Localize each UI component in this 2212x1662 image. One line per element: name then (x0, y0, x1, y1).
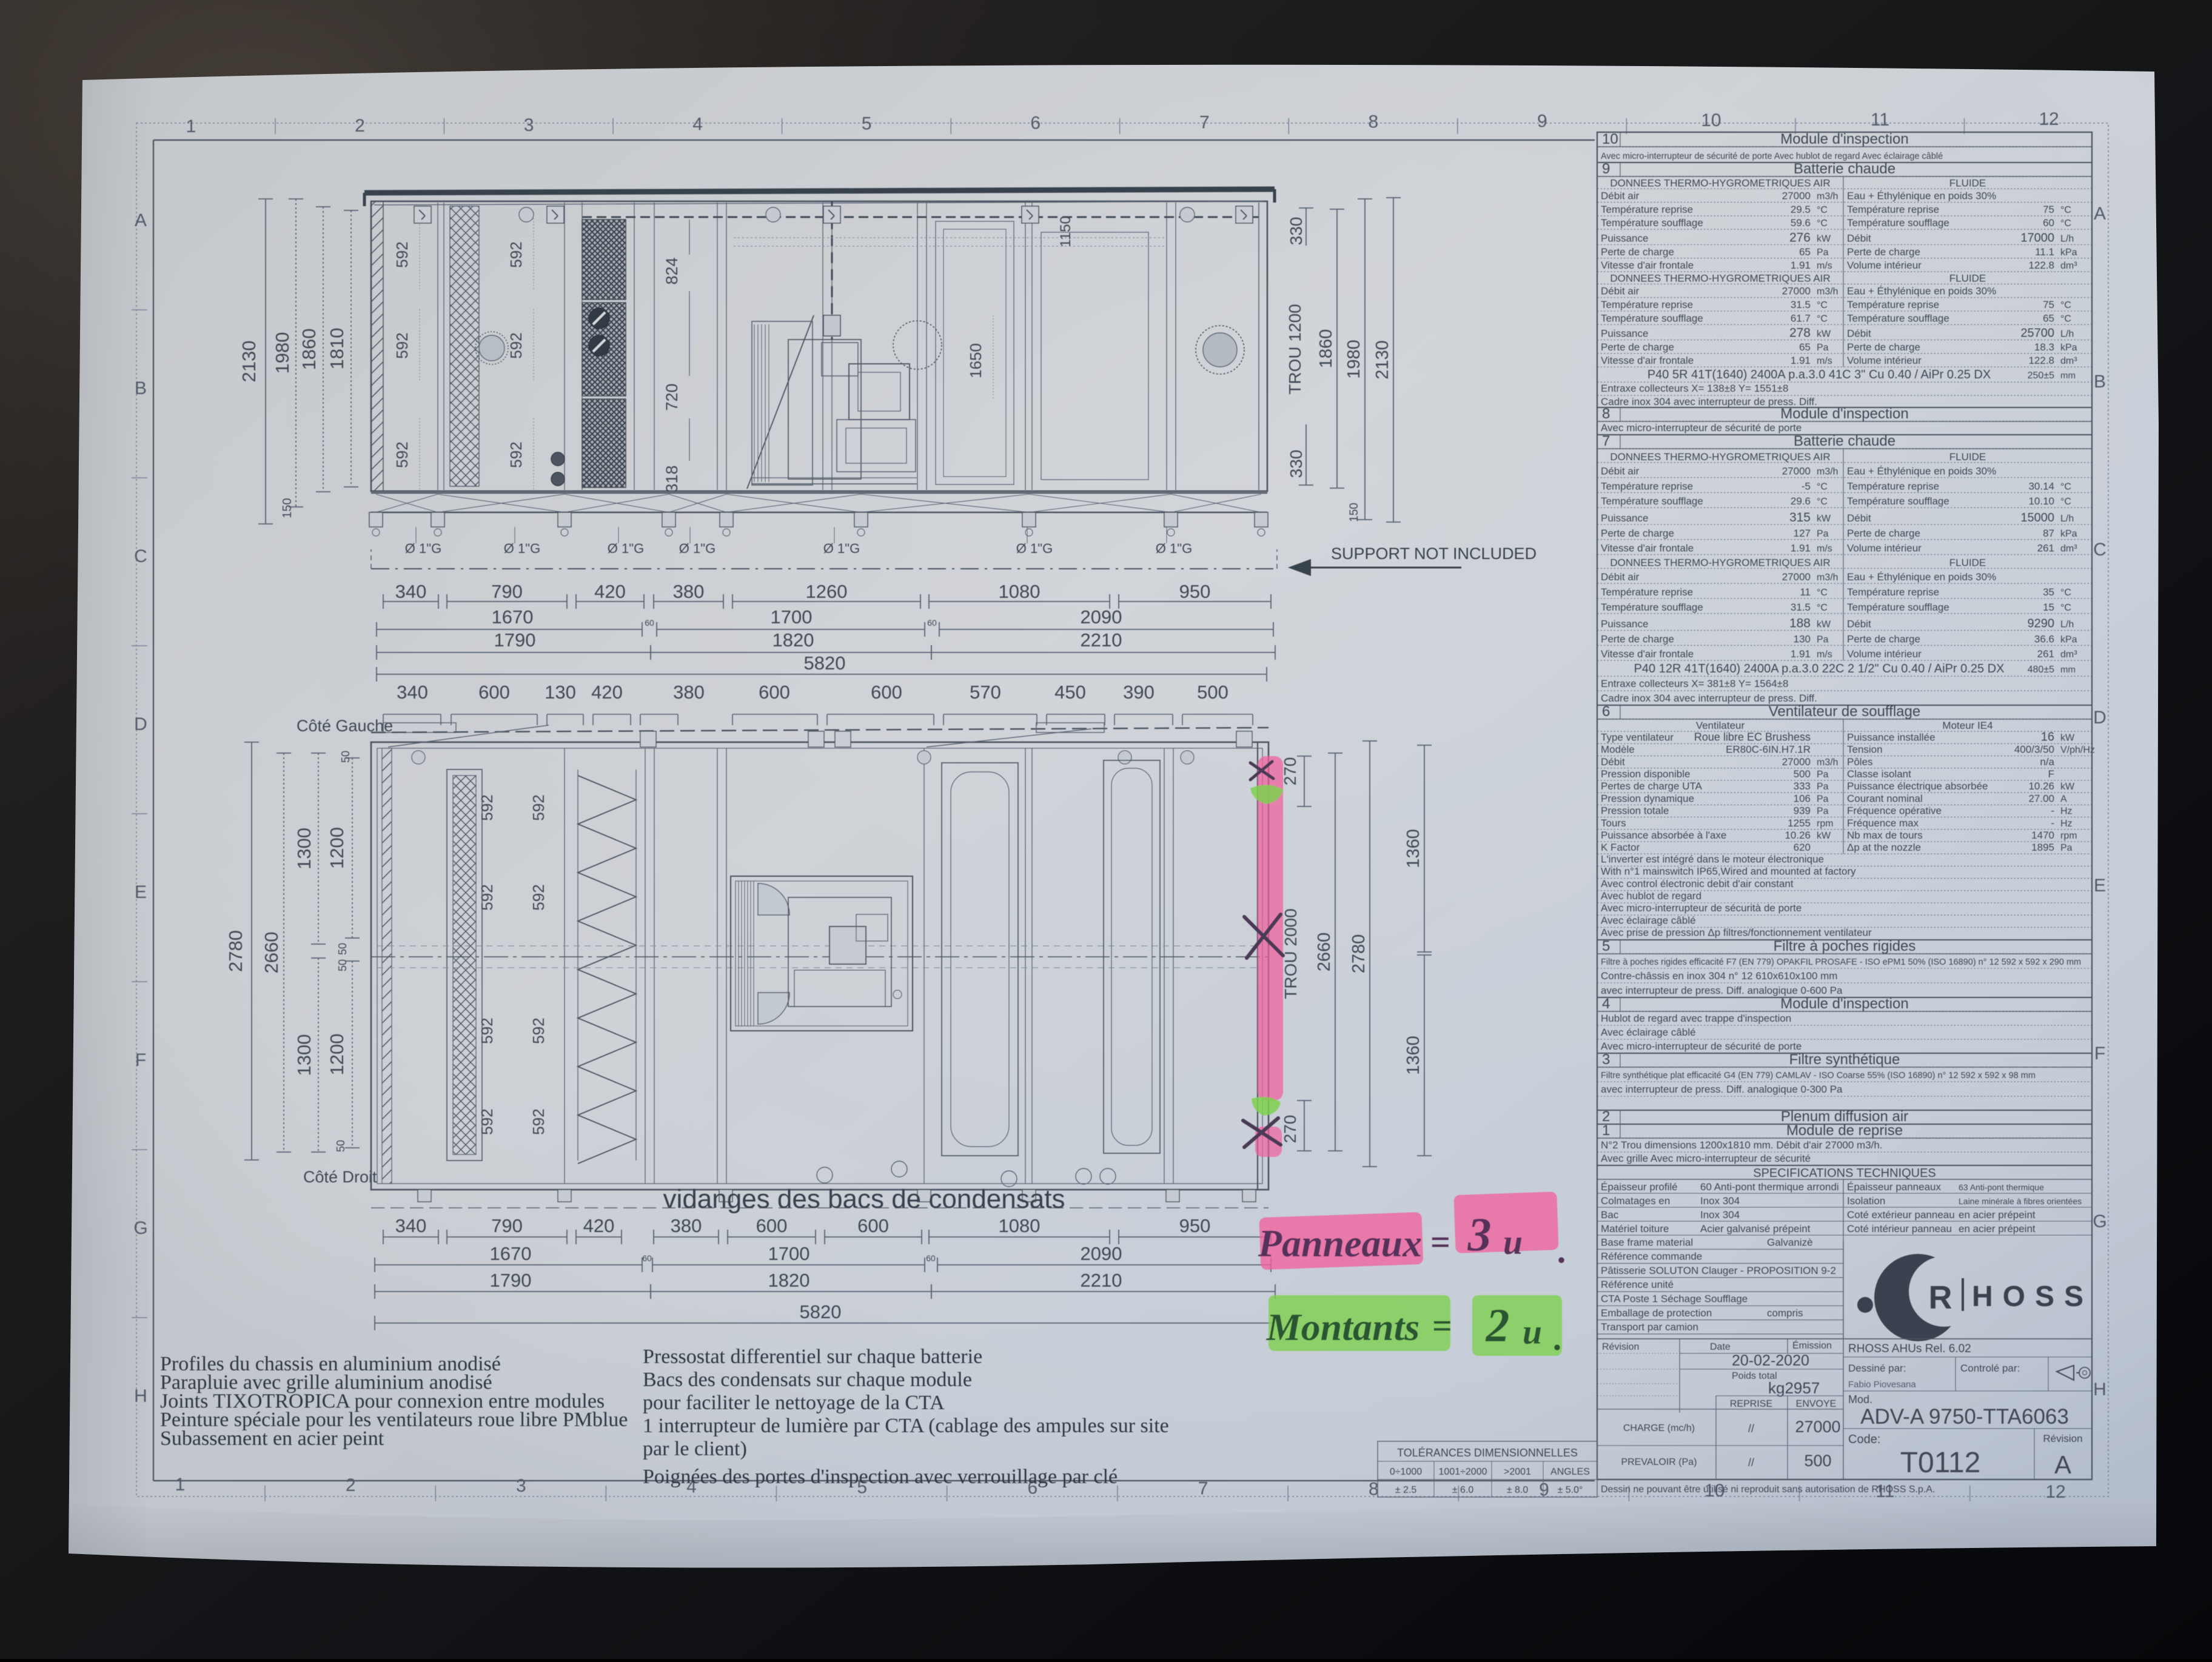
svg-text:600: 600 (857, 1215, 889, 1236)
svg-text:°C: °C (1817, 497, 1828, 507)
svg-text:Vitesse d'air frontale: Vitesse d'air frontale (1601, 355, 1694, 366)
svg-text:>2001: >2001 (1504, 1467, 1531, 1477)
svg-text:A: A (2054, 1450, 2071, 1479)
svg-text:°C: °C (2060, 300, 2071, 310)
svg-text:61.7: 61.7 (1791, 312, 1811, 324)
svg-text:K Factor: K Factor (1601, 842, 1640, 853)
svg-text:°C: °C (1817, 481, 1828, 492)
svg-text:Avec micro-interrupteur de séc: Avec micro-interrupteur de sécurità de p… (1601, 902, 1801, 914)
svg-text:Volume intérieur: Volume intérieur (1847, 260, 1922, 271)
svg-text:Entraxe collecteurs: Entraxe collecteurs X= 381±8 Y= 1564±8 (1601, 678, 1788, 689)
svg-text:ANGLES: ANGLES (1550, 1467, 1590, 1477)
svg-text:261: 261 (2037, 648, 2054, 660)
svg-text:4: 4 (692, 115, 703, 135)
svg-text:DONNEES THERMO-HYGROMETRIQUES: DONNEES THERMO-HYGROMETRIQUES AIR (1610, 177, 1830, 189)
svg-text:8: 8 (1602, 406, 1610, 422)
svg-text:790: 790 (491, 581, 523, 602)
svg-text:rpm: rpm (1817, 819, 1834, 829)
svg-text:420: 420 (583, 1215, 615, 1236)
svg-text:compris: compris (1767, 1307, 1803, 1319)
svg-text:Coté extérieur panneau: Coté extérieur panneau (1847, 1209, 1955, 1221)
svg-text:25700: 25700 (2020, 327, 2054, 340)
svg-text:A: A (2094, 204, 2106, 224)
svg-text:Pression disponible: Pression disponible (1601, 768, 1690, 780)
svg-text:1: 1 (186, 116, 196, 136)
svg-text:Tension: Tension (1847, 744, 1883, 756)
svg-text:Ø 1"G: Ø 1"G (823, 541, 860, 556)
svg-text:Perte de charge: Perte de charge (1601, 341, 1674, 353)
svg-text:ENVOYE: ENVOYE (1796, 1399, 1837, 1409)
svg-text:Épaisseur profilé: Épaisseur profilé (1601, 1181, 1678, 1193)
svg-text:Entraxe collecteurs: Entraxe collecteurs X= 138±8 Y= 1551±8 (1601, 383, 1788, 394)
svg-text:A: A (135, 210, 147, 230)
svg-text:Perte de charge: Perte de charge (1601, 246, 1674, 258)
svg-text:720: 720 (663, 383, 681, 410)
svg-text:Ventilateur: Ventilateur (1696, 720, 1745, 731)
svg-text:59.6: 59.6 (1791, 217, 1811, 229)
svg-text:Colmatages en: Colmatages en (1601, 1195, 1670, 1207)
svg-text:Température soufflage: Température soufflage (1847, 217, 1949, 229)
svg-text:620: 620 (1794, 842, 1811, 853)
svg-text:188: 188 (1789, 617, 1811, 631)
svg-text:Panneaux: Panneaux (1258, 1222, 1422, 1265)
svg-text:380: 380 (671, 1215, 702, 1236)
svg-text:63 Anti-pont thermique: 63 Anti-pont thermique (1959, 1182, 2044, 1192)
svg-text:Inox 304: Inox 304 (1700, 1209, 1740, 1221)
svg-text:Puissance: Puissance (1601, 233, 1648, 244)
svg-text:270: 270 (1281, 1115, 1299, 1144)
svg-text:Débit air: Débit air (1601, 466, 1640, 477)
svg-text:600: 600 (756, 1215, 788, 1236)
svg-text:Eau + Éthylénique en poids 30%: Eau + Éthylénique en poids 30% (1847, 286, 1996, 297)
svg-text:3: 3 (524, 115, 534, 135)
svg-text:1470: 1470 (2031, 829, 2054, 841)
svg-text:592: 592 (529, 1017, 548, 1044)
svg-text:27000: 27000 (1795, 1418, 1840, 1436)
svg-text:1200: 1200 (326, 1034, 347, 1076)
svg-text:261: 261 (2037, 543, 2054, 554)
svg-text:Batterie chaude: Batterie chaude (1794, 161, 1895, 177)
svg-text:1001÷2000: 1001÷2000 (1439, 1467, 1487, 1477)
svg-text:31.5: 31.5 (1791, 601, 1811, 613)
svg-text:10.26: 10.26 (2028, 780, 2054, 792)
svg-text:Eau + Éthylénique en poids 30%: Eau + Éthylénique en poids 30% (1847, 190, 1996, 202)
svg-text:2: 2 (346, 1475, 356, 1495)
svg-text:Avec prise de pression Δp filt: Avec prise de pression Δp filtres/foncti… (1601, 927, 1872, 939)
svg-text:340: 340 (395, 1215, 427, 1236)
svg-text:E: E (135, 882, 147, 902)
svg-text:°C: °C (1817, 218, 1828, 229)
svg-text:592: 592 (478, 1108, 496, 1134)
svg-text:1: 1 (175, 1475, 186, 1495)
svg-text:G: G (2093, 1211, 2106, 1231)
svg-text:270: 270 (1281, 757, 1299, 786)
svg-text:Température soufflage: Température soufflage (1847, 495, 1949, 507)
svg-text:27000: 27000 (1782, 466, 1811, 477)
svg-text:122.8: 122.8 (2028, 355, 2054, 366)
svg-text://: // (1748, 1456, 1754, 1469)
svg-text:°C: °C (1817, 205, 1828, 215)
svg-text:Débit: Débit (1601, 756, 1625, 768)
svg-text:1895: 1895 (2031, 842, 2054, 853)
svg-text:340: 340 (397, 682, 428, 703)
svg-text:u: u (1503, 1222, 1523, 1262)
svg-text:H: H (134, 1386, 147, 1406)
svg-text:1810: 1810 (326, 328, 347, 370)
svg-text:Révision: Révision (2043, 1433, 2082, 1444)
svg-text:Transport par camion: Transport par camion (1601, 1321, 1698, 1333)
svg-text:592: 592 (478, 794, 496, 820)
svg-text:Pa: Pa (2060, 843, 2073, 853)
svg-text:Module d'inspection: Module d'inspection (1780, 131, 1908, 147)
svg-text:Avec micro-interrupteur de séc: Avec micro-interrupteur de sécurité de p… (1601, 152, 1943, 161)
svg-text:Base frame material: Base frame material (1601, 1236, 1693, 1248)
svg-text:-: - (2051, 805, 2054, 817)
svg-text:1260: 1260 (806, 581, 848, 602)
svg-text:dm³: dm³ (2060, 356, 2077, 366)
svg-text:1860: 1860 (1316, 329, 1336, 369)
svg-text:11: 11 (1871, 110, 1889, 130)
svg-text:m3/h: m3/h (1817, 287, 1838, 297)
svg-text:Pertes de charge UTA: Pertes de charge UTA (1601, 780, 1703, 792)
svg-text:kW: kW (2060, 782, 2075, 792)
svg-text:°C: °C (1817, 313, 1828, 324)
svg-text:1820: 1820 (768, 1270, 810, 1291)
svg-text:1360: 1360 (1404, 1036, 1423, 1075)
svg-text:Fabio Piovesana: Fabio Piovesana (1848, 1379, 1916, 1390)
svg-text:Puissance absorbée à l'axe: Puissance absorbée à l'axe (1601, 829, 1726, 841)
svg-text:Galvanizè: Galvanizè (1767, 1236, 1813, 1248)
svg-text:Emballage de protection: Emballage de protection (1601, 1307, 1712, 1319)
svg-text:Volume intérieur: Volume intérieur (1847, 648, 1922, 660)
svg-text:65: 65 (1799, 341, 1811, 353)
svg-text:D: D (134, 714, 147, 734)
svg-text:m/s: m/s (1817, 261, 1832, 271)
svg-text:480±5: 480±5 (2028, 665, 2054, 675)
svg-text:6: 6 (1030, 113, 1041, 133)
svg-text:Révision: Révision (1602, 1342, 1639, 1352)
svg-text:65: 65 (1799, 246, 1811, 258)
svg-text:± 2.5: ± 2.5 (1395, 1485, 1417, 1495)
svg-text:Volume intérieur: Volume intérieur (1847, 355, 1922, 366)
svg-text:Matériel toiture: Matériel toiture (1601, 1223, 1669, 1235)
svg-text:Controlé par:: Controlé par: (1960, 1362, 2020, 1374)
svg-text:Classe isolant: Classe isolant (1847, 768, 1911, 780)
svg-text:FLUIDE: FLUIDE (1949, 451, 1986, 463)
svg-text:380: 380 (673, 682, 705, 703)
svg-text:1080: 1080 (999, 581, 1041, 602)
svg-text:Pôles: Pôles (1847, 756, 1873, 768)
svg-text:Pa: Pa (1817, 769, 1829, 780)
svg-text:Moteur IE4: Moteur IE4 (1942, 720, 1992, 731)
svg-text:Filtre synthétique: Filtre synthétique (1789, 1051, 1900, 1068)
svg-text:A: A (2060, 794, 2067, 804)
svg-text:Perte de charge: Perte de charge (1601, 528, 1674, 539)
svg-text:0÷1000: 0÷1000 (1390, 1467, 1422, 1477)
svg-text:1.91: 1.91 (1791, 648, 1811, 660)
svg-text:Acier galvanisé prépeint: Acier galvanisé prépeint (1700, 1223, 1811, 1235)
svg-text:Pressostat differentiel sur ch: Pressostat differentiel sur chaque batte… (643, 1345, 982, 1368)
svg-text:Laine minérale à fibres orient: Laine minérale à fibres orientées (1959, 1196, 2082, 1206)
svg-text:Mod.: Mod. (1848, 1393, 1872, 1406)
svg-text:1980: 1980 (272, 332, 293, 374)
svg-text:8: 8 (1369, 1479, 1379, 1499)
svg-text:Batterie chaude: Batterie chaude (1794, 433, 1895, 449)
svg-text:Avec éclairage câblé: Avec éclairage câblé (1601, 1027, 1696, 1038)
svg-text:1790: 1790 (490, 1270, 532, 1291)
svg-text:2130: 2130 (238, 341, 260, 383)
svg-text:F: F (2094, 1044, 2105, 1064)
svg-text:Bac: Bac (1601, 1209, 1619, 1221)
svg-text:17000: 17000 (2020, 232, 2054, 245)
svg-text:Courant nominal: Courant nominal (1847, 792, 1923, 804)
svg-text:Débit: Débit (1847, 512, 1871, 524)
svg-text:36.6: 36.6 (2034, 633, 2054, 645)
svg-text:592: 592 (393, 441, 411, 467)
svg-text:1300: 1300 (293, 1034, 315, 1076)
svg-text:°C: °C (1817, 300, 1828, 310)
svg-text:en acier prépeint: en acier prépeint (1959, 1209, 2036, 1221)
svg-text:m/s: m/s (1817, 544, 1832, 554)
svg-text:16: 16 (2041, 730, 2054, 743)
svg-text:.: . (1557, 1231, 1566, 1270)
svg-text:°C: °C (2060, 218, 2071, 229)
svg-text:592: 592 (529, 794, 548, 820)
svg-text:Volume intérieur: Volume intérieur (1847, 543, 1922, 554)
svg-text:18.3: 18.3 (2034, 341, 2054, 353)
svg-text:Avec hublot de regard: Avec hublot de regard (1601, 890, 1701, 902)
svg-text:P40 5R 41T(1640) 2400A p.a.3.0: P40 5R 41T(1640) 2400A p.a.3.0 41C 3" Cu… (1647, 368, 1991, 381)
svg-text:35: 35 (2043, 586, 2054, 598)
svg-text:Type ventilateur: Type ventilateur (1601, 731, 1674, 743)
svg-text:°C: °C (2060, 588, 2071, 598)
svg-text:C: C (2093, 540, 2106, 560)
svg-text:Ø 1"G: Ø 1"G (504, 541, 540, 556)
svg-text:27000: 27000 (1782, 756, 1811, 768)
svg-text:Température reprise: Température reprise (1847, 586, 1939, 598)
svg-text:par le client): par le client) (643, 1438, 747, 1460)
svg-text:Puissance électrique absorbée: Puissance électrique absorbée (1847, 780, 1988, 792)
svg-text:dm³: dm³ (2060, 649, 2077, 660)
svg-text:kW: kW (1817, 234, 1831, 244)
svg-text:27000: 27000 (1782, 190, 1811, 202)
svg-text:950: 950 (1179, 581, 1211, 602)
svg-text:1650: 1650 (967, 343, 985, 378)
svg-text:°C: °C (2060, 603, 2071, 613)
svg-text:Module de reprise: Module de reprise (1786, 1122, 1903, 1139)
svg-text:Fréquence opérative: Fréquence opérative (1847, 805, 1942, 817)
svg-text:en acier prépeint: en acier prépeint (1959, 1223, 2036, 1235)
svg-text:Hz: Hz (2060, 806, 2073, 817)
svg-text:Montants: Montants (1266, 1305, 1420, 1349)
svg-text:10: 10 (1701, 110, 1721, 130)
svg-text:3: 3 (1602, 1051, 1610, 1068)
svg-text:Ø 1"G: Ø 1"G (608, 541, 644, 556)
svg-text:Date: Date (1710, 1342, 1731, 1352)
svg-text:m/s: m/s (1817, 649, 1832, 660)
svg-text:1670: 1670 (492, 606, 534, 628)
svg-text:Modèle: Modèle (1601, 744, 1635, 756)
svg-text:Température soufflage: Température soufflage (1601, 601, 1703, 613)
svg-text:5820: 5820 (800, 1301, 842, 1322)
svg-text:27000: 27000 (1782, 571, 1811, 583)
svg-text:-5: -5 (1801, 480, 1811, 492)
svg-text:± 6.0: ± 6.0 (1452, 1485, 1474, 1495)
svg-text:7: 7 (1602, 433, 1610, 449)
svg-text:Côté Droit: Côté Droit (303, 1168, 377, 1186)
svg-text:592: 592 (529, 1108, 548, 1134)
svg-text:50: 50 (340, 751, 352, 763)
svg-text:Fréquence max: Fréquence max (1847, 817, 1919, 829)
svg-text:60: 60 (645, 618, 654, 628)
svg-text:Ø 1"G: Ø 1"G (1016, 541, 1053, 556)
svg-text:380: 380 (673, 581, 705, 602)
svg-text:L/h: L/h (2060, 234, 2074, 244)
svg-text:592: 592 (507, 332, 525, 358)
svg-text:Δp at the nozzle: Δp at the nozzle (1847, 842, 1921, 853)
svg-text:Nb max de tours: Nb max de tours (1847, 829, 1923, 841)
svg-text:Pa: Pa (1817, 782, 1829, 792)
svg-text:H: H (2093, 1379, 2106, 1399)
svg-text:10: 10 (1602, 131, 1618, 147)
svg-text:Débit: Débit (1847, 233, 1871, 244)
svg-text:Température reprise: Température reprise (1601, 299, 1693, 310)
svg-text:Débit air: Débit air (1601, 286, 1640, 297)
svg-text:50: 50 (337, 943, 349, 955)
svg-text:DONNEES THERMO-HYGROMETRIQUES: DONNEES THERMO-HYGROMETRIQUES AIR (1610, 272, 1830, 284)
svg-text:E: E (2094, 876, 2106, 896)
svg-text:Débit: Débit (1847, 328, 1871, 340)
svg-text:F: F (135, 1050, 146, 1070)
svg-text:rpm: rpm (2060, 831, 2077, 841)
svg-text:Puissance: Puissance (1601, 618, 1648, 630)
svg-text:11: 11 (1800, 586, 1811, 598)
svg-text:Avec grille Avec micro: Avec grille Avec micro-interrupteur de s… (1601, 1153, 1811, 1164)
svg-text:Code:: Code: (1848, 1433, 1880, 1446)
svg-text:Pa: Pa (1817, 806, 1829, 817)
svg-text:± 8.0: ± 8.0 (1507, 1485, 1529, 1495)
svg-text:5820: 5820 (804, 652, 846, 674)
svg-text:2130: 2130 (1373, 340, 1392, 380)
svg-text:°C: °C (2060, 497, 2071, 507)
svg-text:dm³: dm³ (2060, 261, 2077, 271)
svg-text:SUPPORT NOT INCLUDED: SUPPORT NOT INCLUDED (1331, 545, 1537, 563)
svg-text:4: 4 (1602, 996, 1610, 1012)
svg-text:m3/h: m3/h (1817, 192, 1838, 202)
svg-text:kPa: kPa (2060, 247, 2077, 258)
svg-text:3: 3 (516, 1476, 526, 1496)
svg-text:FLUIDE: FLUIDE (1949, 272, 1986, 284)
svg-text:Filtre à poches rigides effica: Filtre à poches rigides efficacité F7 (E… (1601, 957, 2081, 967)
svg-text:12: 12 (2045, 1482, 2065, 1502)
svg-text:7: 7 (1199, 113, 1210, 133)
svg-text:Contre-châssis en inox 304 n°: Contre-châssis en inox 304 n° 12 610x610… (1601, 970, 1837, 982)
svg-text:u: u (1523, 1312, 1542, 1352)
svg-text:1700: 1700 (771, 606, 813, 628)
svg-text:Pression dynamique: Pression dynamique (1601, 792, 1694, 804)
svg-text:Température reprise: Température reprise (1601, 480, 1693, 492)
svg-text:°C: °C (1817, 588, 1828, 598)
svg-text:HOSS: HOSS (1972, 1281, 2093, 1313)
svg-text:CHARGE (mc/h): CHARGE (mc/h) (1623, 1423, 1695, 1433)
svg-text:D: D (2093, 708, 2106, 728)
svg-text:600: 600 (478, 682, 510, 703)
svg-text:2: 2 (1486, 1299, 1510, 1352)
svg-text:939: 939 (1794, 805, 1811, 817)
svg-text:2660: 2660 (261, 932, 282, 974)
svg-text:Perte de charge: Perte de charge (1601, 633, 1674, 645)
svg-text:127: 127 (1794, 528, 1811, 539)
svg-text:318: 318 (663, 465, 681, 492)
svg-text:TROU 2000: TROU 2000 (1281, 908, 1300, 999)
svg-text:1 interrupteur de lumière par: 1 interrupteur de lumière par CTA (cabla… (643, 1415, 1169, 1437)
svg-text:150: 150 (281, 498, 294, 518)
svg-text:ADV-A 9750-TTA6063: ADV-A 9750-TTA6063 (1860, 1405, 2069, 1429)
svg-text:°C: °C (1817, 603, 1828, 613)
svg-text:Pression totale: Pression totale (1601, 805, 1669, 817)
svg-text:Roue libre EC Brushess: Roue libre EC Brushess (1694, 731, 1811, 743)
svg-text:1200: 1200 (326, 827, 347, 869)
svg-text:1.91: 1.91 (1791, 355, 1811, 366)
svg-text:kW: kW (1817, 620, 1831, 630)
svg-text:pour faciliter le nettoyage de: pour faciliter le nettoyage de la CTA (643, 1392, 945, 1414)
svg-text:Température soufflage: Température soufflage (1847, 601, 1949, 613)
svg-text:Référence unité: Référence unité (1601, 1279, 1674, 1290)
svg-text:Température soufflage: Température soufflage (1847, 312, 1949, 324)
svg-text:592: 592 (529, 884, 548, 910)
svg-text:Pa: Pa (1817, 794, 1829, 804)
svg-text:m3/h: m3/h (1817, 572, 1838, 583)
svg-text:278: 278 (1789, 326, 1811, 340)
svg-text:130: 130 (545, 682, 576, 703)
svg-text:1: 1 (1602, 1122, 1610, 1139)
svg-text:1080: 1080 (999, 1215, 1041, 1236)
svg-text:592: 592 (507, 241, 525, 267)
svg-text:5: 5 (862, 114, 872, 134)
svg-text:FLUIDE: FLUIDE (1949, 177, 1986, 189)
svg-text:500: 500 (1804, 1452, 1831, 1470)
svg-text:kPa: kPa (2060, 343, 2077, 353)
svg-text:m/s: m/s (1817, 356, 1832, 366)
svg-text:315: 315 (1789, 511, 1811, 524)
svg-text:avec interrupteur de press. Di: avec interrupteur de press. Diff. analog… (1601, 985, 1843, 996)
svg-text:592: 592 (478, 1017, 496, 1044)
svg-text:REPRISE: REPRISE (1730, 1399, 1772, 1409)
svg-text:Température soufflage: Température soufflage (1601, 312, 1703, 324)
svg-text:790: 790 (491, 1215, 523, 1236)
svg-text:Subassement en acier peint: Subassement en acier peint (160, 1427, 384, 1450)
svg-text:=: = (1432, 1306, 1452, 1345)
svg-text:Température reprise: Température reprise (1601, 586, 1693, 598)
svg-text:kW: kW (1817, 831, 1831, 841)
svg-text:Avec éclairage câblé: Avec éclairage câblé (1601, 914, 1696, 926)
svg-text:DONNEES THERMO-HYGROMETRIQUES: DONNEES THERMO-HYGROMETRIQUES AIR (1610, 451, 1830, 463)
svg-text:°C: °C (2060, 205, 2071, 215)
svg-text:F: F (2048, 768, 2054, 780)
svg-text:20-02-2020: 20-02-2020 (1732, 1352, 1809, 1369)
svg-text:.: . (1553, 1318, 1562, 1358)
svg-text:7: 7 (1198, 1479, 1208, 1499)
svg-text://: // (1748, 1422, 1754, 1435)
svg-text:T0112: T0112 (1900, 1447, 1981, 1479)
svg-text:600: 600 (759, 682, 790, 703)
svg-text:m3/h: m3/h (1817, 757, 1838, 768)
svg-text:60: 60 (2043, 217, 2054, 229)
svg-text:TROU 1200: TROU 1200 (1285, 304, 1304, 394)
svg-text:Ø 1"G: Ø 1"G (1156, 541, 1192, 556)
svg-text:500: 500 (1794, 768, 1811, 780)
svg-text:450: 450 (1054, 682, 1086, 703)
